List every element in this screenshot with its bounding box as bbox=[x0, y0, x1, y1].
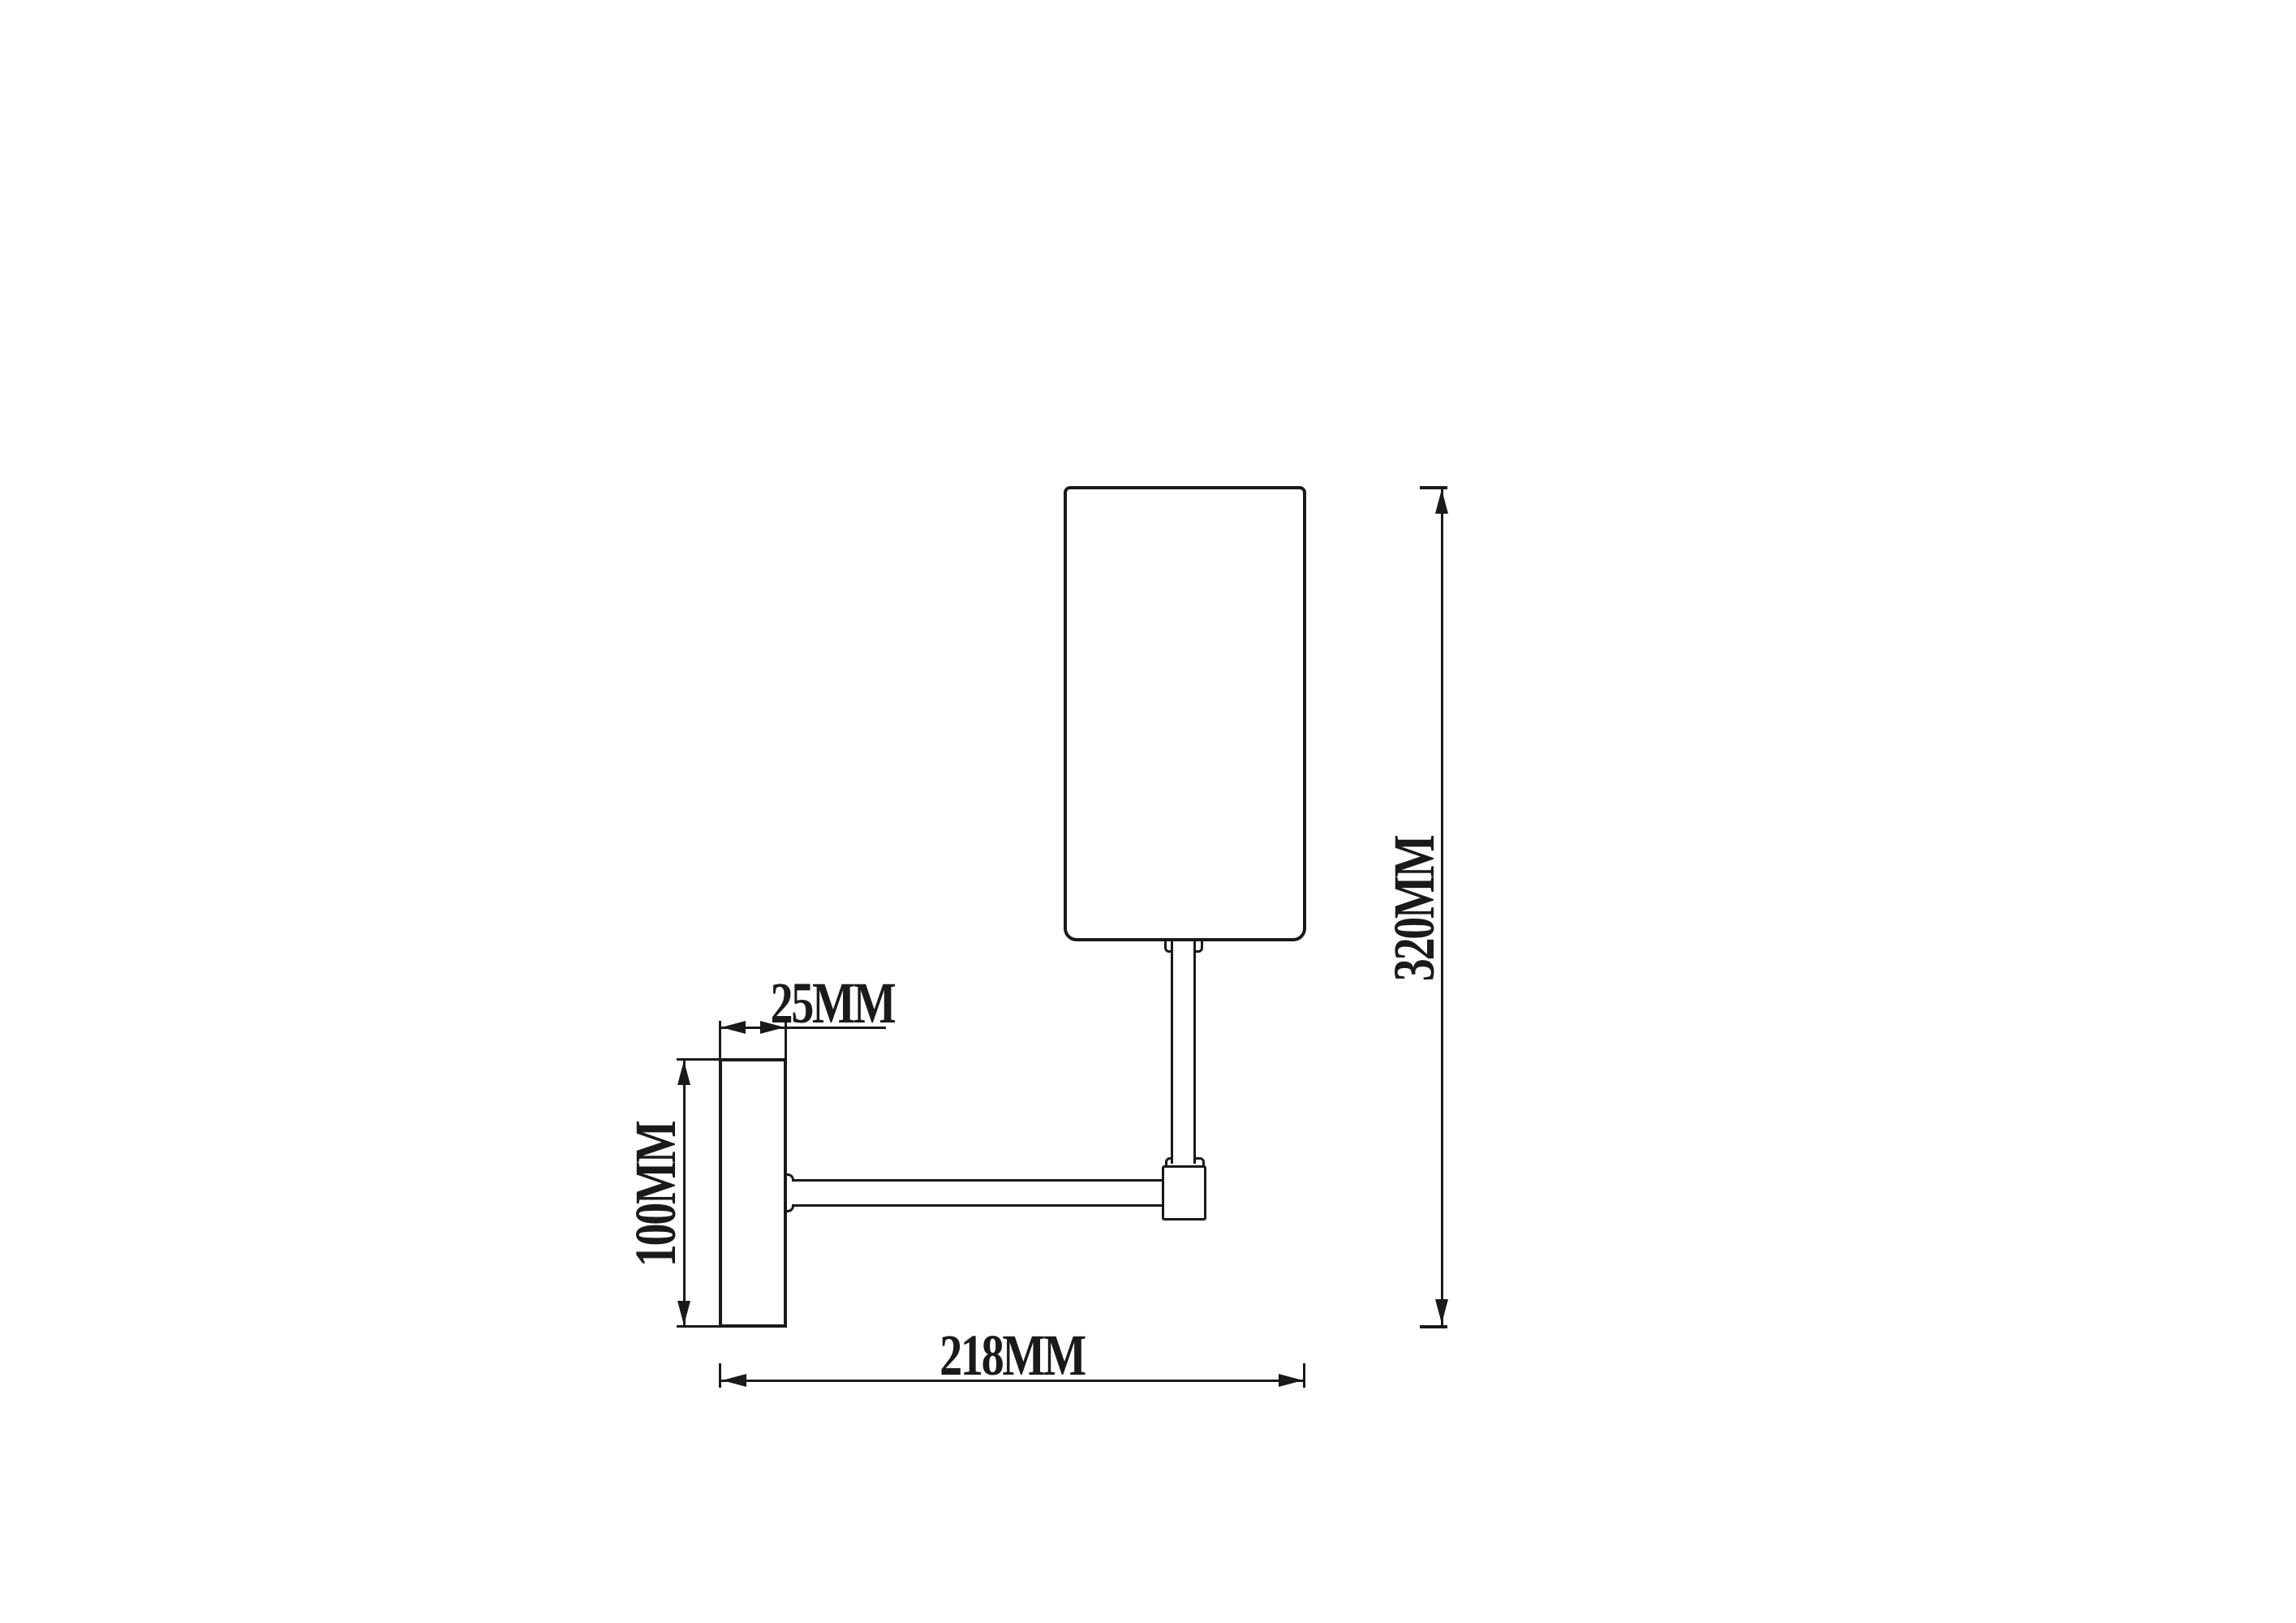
wall-plate bbox=[719, 1058, 787, 1328]
stem bbox=[1171, 941, 1196, 1164]
dim-218mm-tick-right bbox=[1303, 1363, 1305, 1388]
lampshade bbox=[1064, 486, 1306, 941]
dim-25mm-label: 25MM bbox=[711, 979, 954, 1027]
dim-218mm-label: 218MM bbox=[890, 1331, 1133, 1380]
dim-320mm-label: 320MM bbox=[1390, 814, 1438, 1004]
dim-218mm-text: 218MM bbox=[939, 1331, 1085, 1380]
dim-320mm-arrow-bottom bbox=[1435, 1299, 1448, 1324]
arm bbox=[792, 1179, 1163, 1207]
dim-218mm-tick-left bbox=[719, 1363, 721, 1388]
dim-25mm-text: 25MM bbox=[771, 979, 895, 1027]
dim-100mm-arrow-top bbox=[677, 1061, 690, 1085]
dim-218mm-arrow-left bbox=[722, 1374, 746, 1387]
dim-218mm-arrow-right bbox=[1279, 1374, 1303, 1387]
dim-100mm-label: 100MM bbox=[631, 1100, 680, 1289]
dim-320mm-arrow-top bbox=[1435, 489, 1448, 514]
technical-drawing-canvas: 25MM 100MM 218MM 320MM bbox=[0, 0, 2296, 1623]
dim-100mm-arrow-bottom bbox=[677, 1301, 690, 1325]
elbow-joint bbox=[1162, 1165, 1206, 1220]
